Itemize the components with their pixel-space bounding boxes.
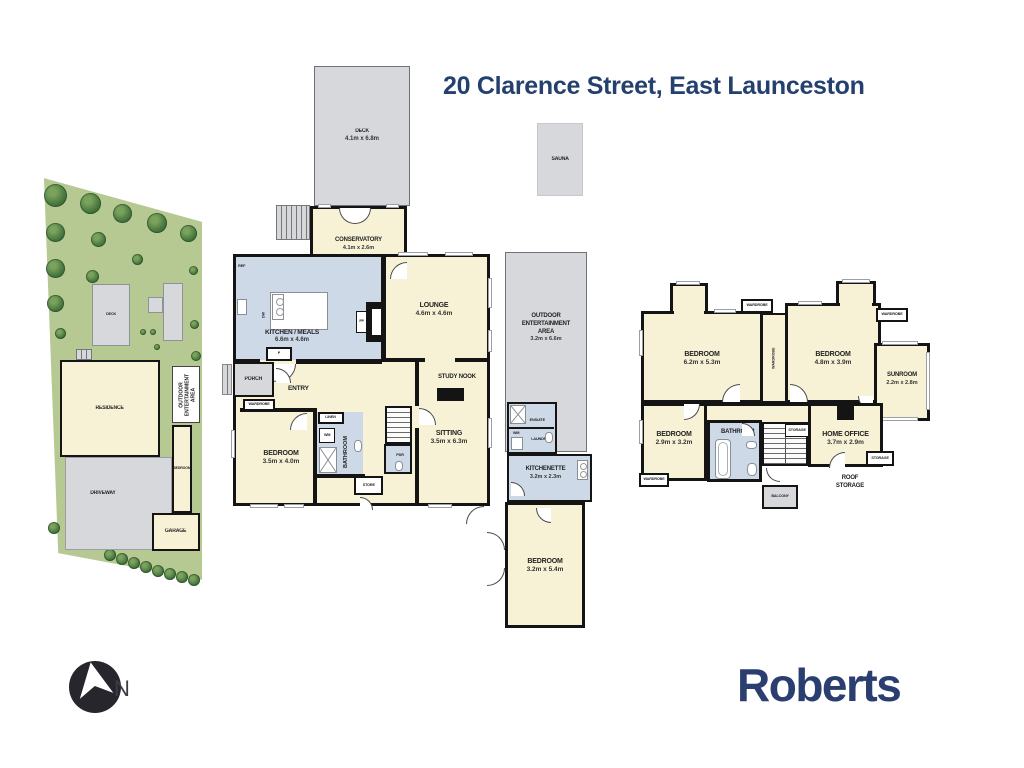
window	[882, 417, 918, 421]
lounge-label: LOUNGE	[420, 301, 449, 310]
window	[639, 420, 643, 444]
tree-icon	[191, 351, 201, 361]
window	[488, 418, 492, 448]
study-nook-label: STUDY NOOK	[438, 374, 476, 382]
upper-bedroom1-dims: 6.2m x 5.3m	[684, 359, 721, 367]
shower-icon	[319, 447, 337, 473]
bush-icon	[154, 344, 160, 350]
conservatory-dims: 4.1m x 2.6m	[343, 245, 374, 252]
north-compass: N	[66, 650, 136, 722]
wall	[509, 427, 554, 429]
upper-bedroom3-dims: 2.9m x 3.2m	[656, 439, 693, 447]
conservatory-label: CONSERVATORY	[335, 237, 382, 245]
storage-cupboard: STORAGE	[866, 451, 894, 466]
oven-icon	[237, 299, 247, 315]
tree-icon	[180, 225, 197, 242]
fireplace-hearth: FP	[356, 311, 367, 333]
bush-icon	[104, 549, 116, 561]
bush-icon	[128, 557, 140, 569]
tree-icon	[46, 223, 65, 242]
bathroom-label: BATHROOM	[340, 430, 352, 474]
window	[798, 301, 822, 305]
door-arc	[511, 482, 525, 496]
kitchenette-label: KITCHENETTE	[526, 466, 566, 474]
upper-bedroom3-label: BEDROOM	[656, 430, 691, 439]
bedroom2-label: BEDROOM	[527, 557, 562, 566]
window	[639, 330, 643, 356]
shower-icon	[510, 405, 526, 424]
bush-icon	[48, 522, 60, 534]
deck-label: DECK	[355, 129, 369, 136]
study-desk	[437, 388, 464, 401]
oven-icon	[577, 460, 588, 480]
pantry: P	[266, 347, 292, 361]
balcony: BALCONY	[762, 485, 798, 509]
tree-icon	[113, 204, 132, 223]
bush-icon	[164, 568, 176, 580]
upper-bedroom1: BEDROOM 6.2m x 5.3m	[641, 311, 763, 403]
sauna-label: SAUNA	[551, 156, 568, 163]
window	[926, 352, 930, 410]
upper-bedroom1-label: BEDROOM	[684, 350, 719, 359]
wardrobe: WARDROBE	[741, 299, 773, 313]
site-deck-label: DECK	[106, 313, 116, 318]
bush-icon	[116, 553, 128, 565]
lounge-dims: 4.6m x 4.6m	[416, 310, 453, 318]
sitting-label: SITTING	[436, 429, 462, 438]
bedroom1-dims: 3.5m x 4.0m	[263, 458, 300, 466]
sunroom-label: SUNROOM	[887, 372, 917, 380]
sunroom-dims: 2.2m x 2.8m	[886, 380, 917, 387]
bathtub-icon	[715, 439, 731, 479]
dishwasher-label: DW	[259, 304, 269, 326]
site-bedroom-label: BEDROOM	[173, 467, 190, 472]
site-deck: DECK	[92, 284, 130, 346]
wall	[296, 359, 382, 364]
bush-icon	[152, 565, 164, 577]
kitchenette-dims: 3.2m x 2.3m	[530, 474, 561, 481]
wall	[381, 256, 386, 304]
deck: DECK 4.1m x 6.8m	[314, 66, 410, 206]
washing-machine: WM	[319, 428, 335, 443]
porch: PORCH	[233, 362, 274, 397]
window	[428, 504, 452, 508]
window	[250, 504, 278, 508]
site-plan: DECK RESIDENCE OUTDOOR ENTERTAINMENT ARE…	[42, 172, 204, 584]
site-driveway-label: DRIVEWAY	[90, 491, 115, 498]
door-arc	[829, 452, 845, 468]
bush-icon	[150, 329, 156, 335]
outdoor-dims: 3.2m x 6.6m	[530, 336, 561, 343]
tree-icon	[55, 328, 66, 339]
bedroom2: BEDROOM 3.2m x 5.4m	[505, 502, 585, 628]
bush-icon	[176, 571, 188, 583]
wardrobe: WARDROBE	[243, 399, 275, 411]
bedroom1-label: BEDROOM	[263, 449, 298, 458]
upper-bedroom3: BEDROOM 2.9m x 3.2m	[641, 403, 707, 481]
storage-cupboard: STORAGE	[785, 424, 809, 437]
wardrobe: WARDROBE	[639, 473, 669, 487]
window	[284, 504, 304, 508]
home-office-label: HOME OFFICE	[822, 430, 868, 439]
porch-steps	[222, 364, 232, 395]
door-arc	[766, 468, 780, 482]
roberts-logo: Roberts	[737, 658, 900, 712]
washing-machine-icon	[511, 437, 523, 450]
window	[398, 252, 428, 256]
door-arc	[487, 568, 505, 586]
north-label: N	[114, 676, 130, 701]
sauna-room: SAUNA	[537, 123, 583, 196]
linen-cupboard: LINEN	[318, 412, 344, 424]
wall	[455, 358, 490, 362]
balcony-label: BALCONY	[771, 495, 789, 500]
window	[676, 281, 700, 285]
wall	[383, 358, 425, 362]
tree-icon	[80, 193, 101, 214]
toilet-icon	[395, 461, 403, 471]
window	[714, 309, 736, 313]
site-garage: GARAGE	[152, 513, 200, 551]
bush-icon	[188, 574, 200, 586]
wall	[415, 362, 419, 406]
site-steps	[76, 349, 92, 360]
window	[882, 341, 918, 345]
sink-icon	[545, 432, 553, 443]
bedroom2-dims: 3.2m x 5.4m	[527, 566, 564, 574]
kitchenette: KITCHENETTE 3.2m x 2.3m	[507, 454, 592, 502]
wardrobe: WARDROBE	[876, 308, 908, 322]
site-residence: RESIDENCE	[60, 360, 160, 457]
tree-icon	[44, 184, 67, 207]
page-title: 20 Clarence Street, East Launceston	[443, 72, 865, 101]
kitchen-dims: 6.6m x 4.6m	[275, 337, 309, 345]
floorplan-page: 20 Clarence Street, East Launceston Robe…	[0, 0, 1024, 768]
tree-icon	[47, 295, 64, 312]
kitchen-label: KITCHEN / MEALS	[265, 329, 319, 337]
upper-bathroom: BATHROOM	[707, 420, 762, 482]
deck-dims: 4.1m x 6.8m	[345, 136, 379, 144]
powder-room: PDR	[384, 444, 412, 474]
bay-join	[674, 306, 704, 316]
door-arc	[466, 506, 484, 524]
site-outdoor-area: OUTDOOR ENTERTAINMENT AREA	[172, 366, 200, 423]
wardrobe: WARDROBE	[761, 313, 787, 403]
home-office-dims: 3.7m x 2.9m	[827, 439, 864, 447]
toilet-icon	[354, 440, 362, 452]
tree-icon	[132, 254, 143, 265]
site-structure	[163, 283, 183, 341]
cooktop-icon	[272, 294, 284, 320]
site-residence-label: RESIDENCE	[96, 405, 124, 412]
wm-label: WM	[513, 431, 519, 436]
firebox	[372, 309, 381, 335]
site-bedroom-wing: BEDROOM	[172, 425, 192, 513]
tree-icon	[147, 213, 167, 233]
window	[231, 430, 235, 458]
external-stairs	[276, 205, 310, 240]
door-arc	[536, 508, 551, 523]
toilet-icon	[747, 463, 757, 476]
porch-label: PORCH	[245, 376, 263, 383]
window	[842, 279, 870, 283]
pdr-label: PDR	[396, 453, 403, 458]
staircase	[385, 406, 412, 444]
upper-bedroom2-dims: 4.8m x 3.9m	[815, 359, 852, 367]
chimney	[837, 406, 854, 420]
tree-icon	[189, 266, 198, 275]
ensuite-label: ENSUITE	[530, 418, 545, 423]
bush-icon	[140, 329, 146, 335]
bush-icon	[140, 561, 152, 573]
ensuite-laundry: ENSUITE WM LAUNDRY	[507, 402, 557, 454]
door-arc	[487, 532, 505, 550]
tree-icon	[86, 270, 99, 283]
window	[445, 252, 473, 256]
roof-storage-label: ROOF STORAGE	[828, 475, 872, 491]
window	[488, 278, 492, 308]
bay-join	[840, 300, 872, 309]
window	[488, 330, 492, 352]
entry-label: ENTRY	[288, 385, 309, 393]
site-structure	[148, 297, 163, 313]
site-garage-label: GARAGE	[165, 529, 186, 536]
window	[386, 204, 399, 208]
site-outdoor-area-label: OUTDOOR ENTERTAINMENT AREA	[178, 367, 197, 424]
fridge-label: REF	[238, 264, 245, 269]
tree-icon	[91, 232, 106, 247]
tree-icon	[190, 320, 199, 329]
window	[318, 204, 331, 208]
store: STORE	[354, 476, 383, 495]
sink-icon	[746, 441, 757, 449]
sitting-dims: 3.5m x 6.3m	[431, 438, 468, 446]
tree-icon	[46, 259, 65, 278]
upper-bedroom2-label: BEDROOM	[815, 350, 850, 359]
